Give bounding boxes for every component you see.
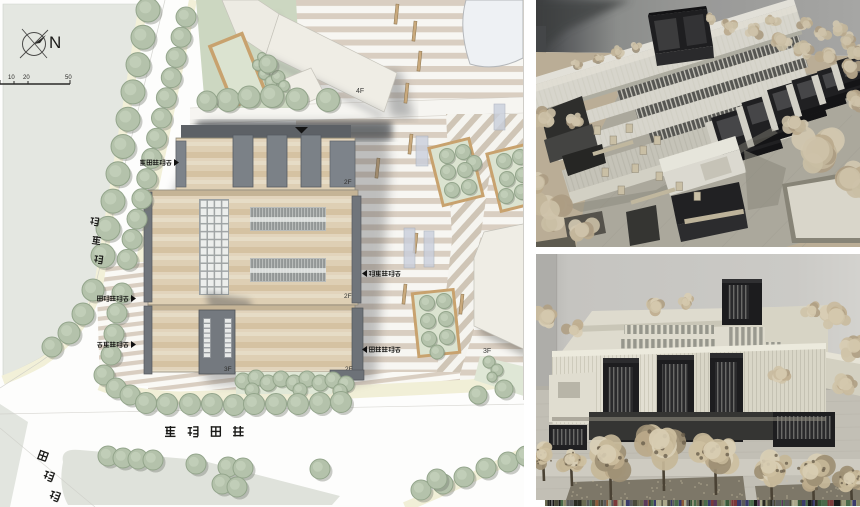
svg-text:20: 20 [23,75,30,81]
svg-text:2F: 2F [344,179,352,186]
svg-text:3F: 3F [224,366,232,373]
svg-text:N: N [49,33,61,52]
svg-text:50: 50 [65,75,72,81]
svg-text:3F: 3F [483,348,491,355]
svg-text:2F: 2F [344,293,352,300]
svg-text:4F: 4F [356,88,364,95]
svg-text:10: 10 [8,75,15,81]
